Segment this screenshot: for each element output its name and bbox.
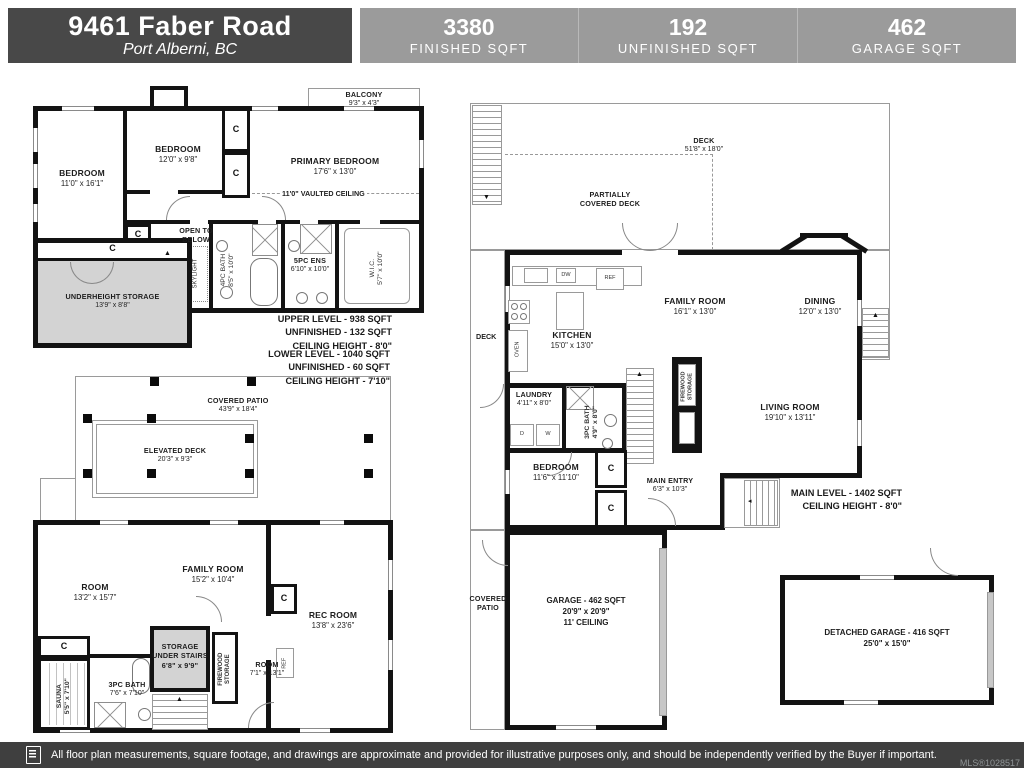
- stat-garage: 462 GARAGE SQFT: [797, 8, 1016, 63]
- kitchen-island: [556, 292, 584, 330]
- partially-covered-deck-label: PARTIALLY COVERED DECK: [560, 190, 660, 209]
- burner: [520, 313, 527, 320]
- stat-value: 462: [888, 15, 926, 40]
- shower: [300, 224, 332, 254]
- window: [252, 106, 278, 111]
- post: [364, 469, 373, 478]
- garage-outline: [505, 530, 667, 730]
- post: [147, 469, 156, 478]
- door-arc: [930, 548, 958, 576]
- elevated-deck-label: ELEVATED DECK 20'3" x 9'3": [112, 446, 238, 464]
- garage-door: [987, 592, 994, 688]
- window: [320, 520, 344, 525]
- post: [83, 469, 92, 478]
- window: [419, 140, 424, 168]
- storage-under-stairs-label: STORAGE UNDER STAIRS 6'8" x 9'9": [150, 642, 210, 670]
- shower: [94, 702, 126, 728]
- stat-value: 192: [669, 15, 707, 40]
- deck-divider-line: [712, 154, 713, 250]
- main-entry-label: MAIN ENTRY 6'3" x 10'3": [634, 476, 706, 494]
- deck-label: DECK 51'8" x 18'0": [656, 136, 752, 154]
- stats-banner: 3380 FINISHED SQFT 192 UNFINISHED SQFT 4…: [360, 8, 1016, 63]
- closet-label: C: [222, 168, 250, 178]
- closet-label: C: [38, 641, 90, 651]
- stat-value: 3380: [443, 15, 494, 40]
- stat-label: FINISHED SQFT: [410, 41, 528, 56]
- post: [147, 414, 156, 423]
- detached-garage-label: DETACHED GARAGE - 416 SQFT 25'0" x 15'0": [800, 628, 974, 650]
- toilet: [316, 292, 328, 304]
- stair-arrow: ▲: [872, 312, 879, 319]
- disclaimer-bar: All floor plan measurements, square foot…: [0, 742, 1024, 768]
- sauna-label: SAUNA 5'5" x 7'10": [56, 666, 72, 726]
- fireplace-insert: [679, 412, 695, 444]
- window: [33, 204, 38, 222]
- wall: [335, 224, 339, 313]
- sink: [296, 292, 308, 304]
- closet-label: C: [595, 463, 627, 473]
- family-room-label: FAMILY ROOM 15'2" x 10'4": [168, 564, 258, 585]
- open-to-below-label: OPEN TO BELOW: [178, 226, 214, 245]
- window: [33, 164, 38, 188]
- stat-label: GARAGE SQFT: [852, 41, 962, 56]
- dining-label: DINING 12'0" x 13'0": [776, 296, 864, 317]
- garage-door: [659, 548, 667, 716]
- mls-number: MLS®1028517: [960, 758, 1020, 768]
- oven-label: OVEN: [515, 329, 522, 369]
- ensuite-label: 5PC ENS 6'10" x 10'0": [285, 256, 335, 274]
- door-opening: [360, 220, 380, 224]
- lower-level-notes: LOWER LEVEL - 1040 SQFT UNFINISHED - 60 …: [190, 348, 390, 388]
- window: [388, 640, 393, 670]
- deck-staircase: [472, 105, 502, 205]
- window: [33, 128, 38, 152]
- stair-arrow: ▲: [636, 371, 643, 378]
- document-icon: [26, 746, 41, 764]
- door-arc: [648, 498, 676, 526]
- door-opening: [150, 190, 178, 194]
- toilet: [138, 708, 151, 721]
- burner: [511, 313, 518, 320]
- stat-finished: 3380 FINISHED SQFT: [360, 8, 578, 63]
- sink: [288, 240, 300, 252]
- side-deck-label: DECK: [474, 332, 498, 341]
- burner: [511, 303, 518, 310]
- wic-label: W.I.C. 5'7" x 10'0": [369, 238, 385, 298]
- disclaimer-text: All floor plan measurements, square foot…: [51, 749, 937, 761]
- window: [556, 725, 596, 730]
- wall: [505, 250, 862, 255]
- kitchen-label: KITCHEN 15'0" x 13'0": [530, 330, 614, 351]
- page-title: 9461 Faber Road: [68, 12, 292, 40]
- closet-label: C: [40, 243, 185, 253]
- rec-room-label: REC ROOM 13'8" x 23'6": [288, 610, 378, 631]
- vaulted-ceiling-label: 11'0" VAULTED CEILING: [280, 189, 367, 198]
- bedroom-label: BEDROOM 11'0" x 16'1": [42, 168, 122, 189]
- washer-label: W: [536, 431, 560, 438]
- storage-label: UNDERHEIGHT STORAGE 13'9" x 8'8": [38, 292, 187, 310]
- window: [857, 420, 862, 446]
- closet-label: C: [222, 124, 250, 134]
- page-subtitle: Port Alberni, BC: [123, 41, 237, 59]
- stat-label: UNFINISHED SQFT: [618, 41, 758, 56]
- post: [83, 414, 92, 423]
- firewood-storage-label: FIREWOOD STORAGE: [218, 641, 232, 697]
- patio-notch: [40, 478, 76, 522]
- closet-label: C: [595, 503, 627, 513]
- living-room-label: LIVING ROOM 19'10" x 13'11": [742, 402, 838, 423]
- bath-label: 4PC BATH 8'5" x 10'0": [220, 240, 236, 300]
- deck-outline: [470, 103, 890, 250]
- dishwasher-label: DW: [556, 272, 576, 279]
- room-label: ROOM 13'2" x 15'7": [52, 582, 138, 603]
- dryer-label: D: [510, 431, 534, 438]
- covered-patio-strip: [470, 530, 505, 730]
- address-banner: 9461 Faber Road Port Alberni, BC: [8, 8, 352, 63]
- primary-bedroom-label: PRIMARY BEDROOM 17'6" x 13'0": [268, 156, 402, 177]
- sink: [602, 438, 613, 449]
- covered-patio-label: COVERED PATIO 43'9" x 18'4": [178, 396, 298, 414]
- stair-arrow: ▲: [176, 696, 183, 703]
- window: [505, 470, 510, 494]
- burner: [520, 303, 527, 310]
- main-level-notes: MAIN LEVEL - 1402 SQFT CEILING HEIGHT - …: [700, 487, 902, 514]
- fridge-label: REF: [282, 650, 289, 676]
- closet-label: C: [271, 593, 297, 603]
- post: [150, 377, 159, 386]
- stat-unfinished: 192 UNFINISHED SQFT: [578, 8, 797, 63]
- window: [388, 560, 393, 590]
- window: [62, 106, 94, 111]
- bath-label: 3PC BATH 4'9" x 8'0": [584, 392, 600, 452]
- post: [245, 469, 254, 478]
- fridge-label: REF: [596, 275, 624, 282]
- bathtub: [250, 258, 278, 306]
- window: [844, 700, 878, 705]
- shower: [252, 224, 278, 256]
- laundry-label: LAUNDRY 4'11" x 8'0": [505, 390, 563, 408]
- closet-label: C: [125, 229, 151, 239]
- family-room-label: FAMILY ROOM 16'1" x 13'0": [650, 296, 740, 317]
- firewood-storage-label: FIREWOOD STORAGE: [680, 362, 693, 412]
- door-opening: [190, 220, 208, 224]
- window: [210, 520, 238, 525]
- toilet: [604, 414, 617, 427]
- stair-arrow: ▼: [483, 194, 490, 201]
- post: [245, 434, 254, 443]
- skylight-label: SKYLIGHT: [192, 251, 199, 297]
- bedroom-label: BEDROOM 12'0" x 9'8": [138, 144, 218, 165]
- kitchen-sink: [524, 268, 548, 283]
- bath-label: 3PC BATH 7'6" x 7'10": [94, 680, 160, 698]
- post: [364, 434, 373, 443]
- balcony-label: BALCONY 9'3" x 4'3": [308, 90, 420, 108]
- floor-plan-page: 9461 Faber Road Port Alberni, BC 3380 FI…: [0, 0, 1024, 768]
- window: [300, 728, 330, 733]
- bedroom-label: BEDROOM 11'6" x 11'10": [514, 462, 598, 483]
- window: [100, 520, 128, 525]
- garage-label: GARAGE - 462 SQFT 20'9" x 20'9" 11' CEIL…: [523, 596, 649, 628]
- window: [860, 575, 894, 580]
- covered-patio-label: COVERED PATIO: [468, 594, 508, 613]
- staircase: [626, 368, 654, 464]
